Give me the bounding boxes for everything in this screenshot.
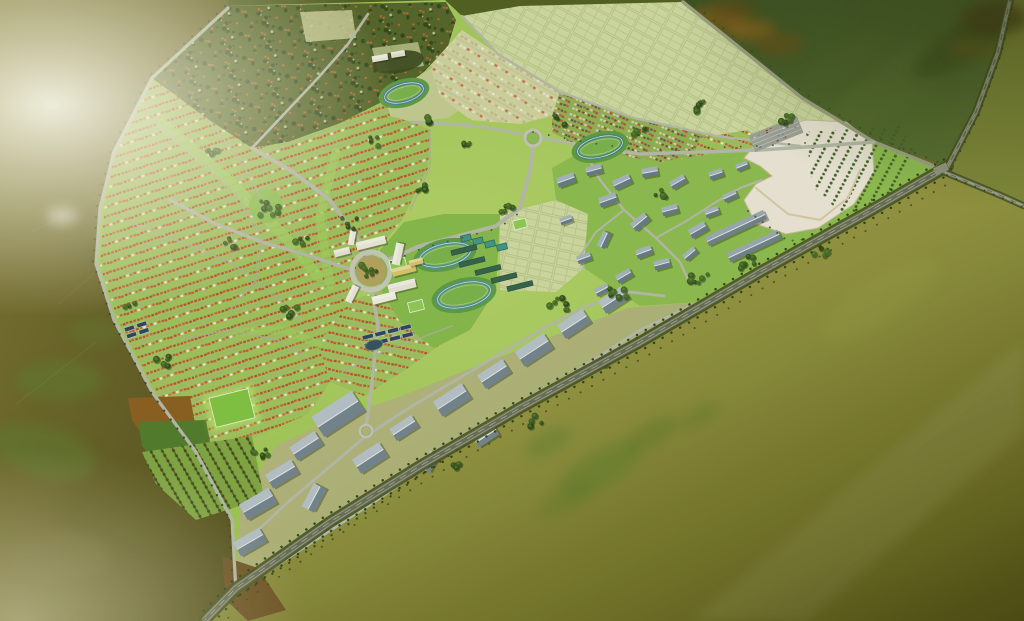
aerial-masterplan-render <box>0 0 1024 621</box>
atmosphere <box>0 0 1024 621</box>
color-tint <box>0 0 1024 621</box>
scene-svg <box>0 0 1024 621</box>
